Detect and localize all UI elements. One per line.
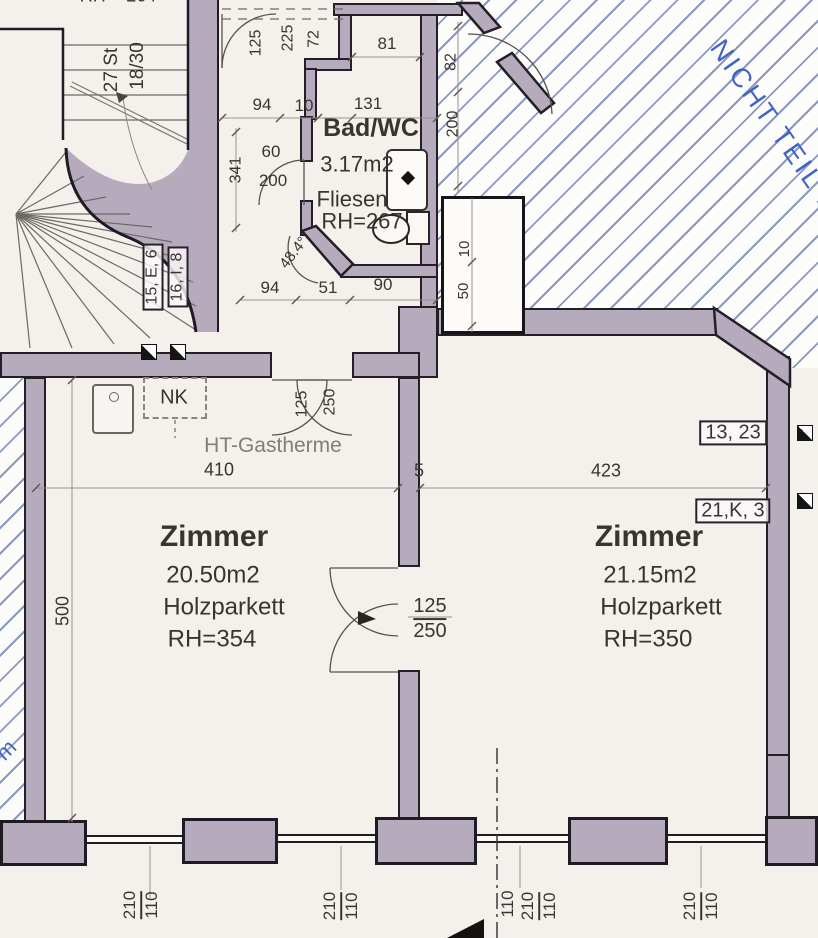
bath-height: RH=267 [321,209,402,232]
dimension-label: 110 [499,890,517,917]
door-tag: 16, I, 8 [168,247,189,308]
room2-title: Zimmer [595,521,703,553]
dimension-label: 225 [281,25,298,52]
room-tag: 13, 23 [699,420,767,445]
dimension-label: 423 [591,461,621,480]
wall-angle: 48.4° [277,234,311,272]
door-size: 125250 [413,596,446,642]
room1-height: RH=354 [168,626,257,651]
niche-label: NK [160,387,188,408]
window-size: 210110 [681,892,721,920]
dimension-label: 82 [444,53,461,71]
dimension-label: 51 [319,279,338,297]
window-size: 210110 [121,891,161,919]
dimension-label: 200 [259,172,287,190]
room1-title: Zimmer [160,521,268,553]
dimension-label: 60 [262,143,281,161]
boiler-label: HT-Gastherme [204,435,342,457]
dimension-label: 94 [253,96,272,114]
dimension-label: 10 [457,241,473,258]
dimension-label: 125 [249,30,266,57]
dimension-label: 410 [204,460,234,479]
room2-area: 21.15m2 [603,562,696,587]
bath-title: Bad/WC [323,115,419,142]
room1-floor: Holzparkett [163,594,284,619]
labels-layer: RH = 26427 St18/301252257281941013134160… [0,0,818,938]
dimension-label: 131 [354,95,382,113]
room2-height: RH=350 [604,626,693,651]
stair-count: 27 St [102,48,122,92]
stair-height-note: RH = 264 [80,0,157,6]
dimension-label: 500 [53,596,72,626]
stair-ratio: 18/30 [128,42,148,90]
dimension-label: 10 [295,97,314,115]
dimension-label: 94 [261,279,280,297]
room1-area: 20.50m2 [166,562,259,587]
dimension-label: 125 [295,391,312,418]
dimension-label: 200 [446,111,463,138]
dimension-label: 90 [374,276,393,294]
dimension-label: 5 [414,461,424,480]
bath-area: 3.17m2 [320,152,393,175]
window-size: 210110 [519,892,559,920]
window-size: 210110 [321,892,361,920]
door-tag: 15, E, 6 [143,243,164,310]
floor-plan: RH = 26427 St18/301252257281941013134160… [0,0,818,938]
dimension-label: 50 [456,283,472,300]
not-part-note: NICHT TEIL D [705,35,818,222]
dimension-label: 81 [378,35,397,53]
bath-floor: Fliesen [317,187,388,210]
room2-floor: Holzparkett [600,594,721,619]
dimension-label: 250 [323,389,340,416]
blue-mark: m [0,735,21,764]
room-tag: 21,K, 3 [695,498,770,523]
dimension-label: 72 [307,30,324,48]
dimension-label: 341 [229,157,246,184]
